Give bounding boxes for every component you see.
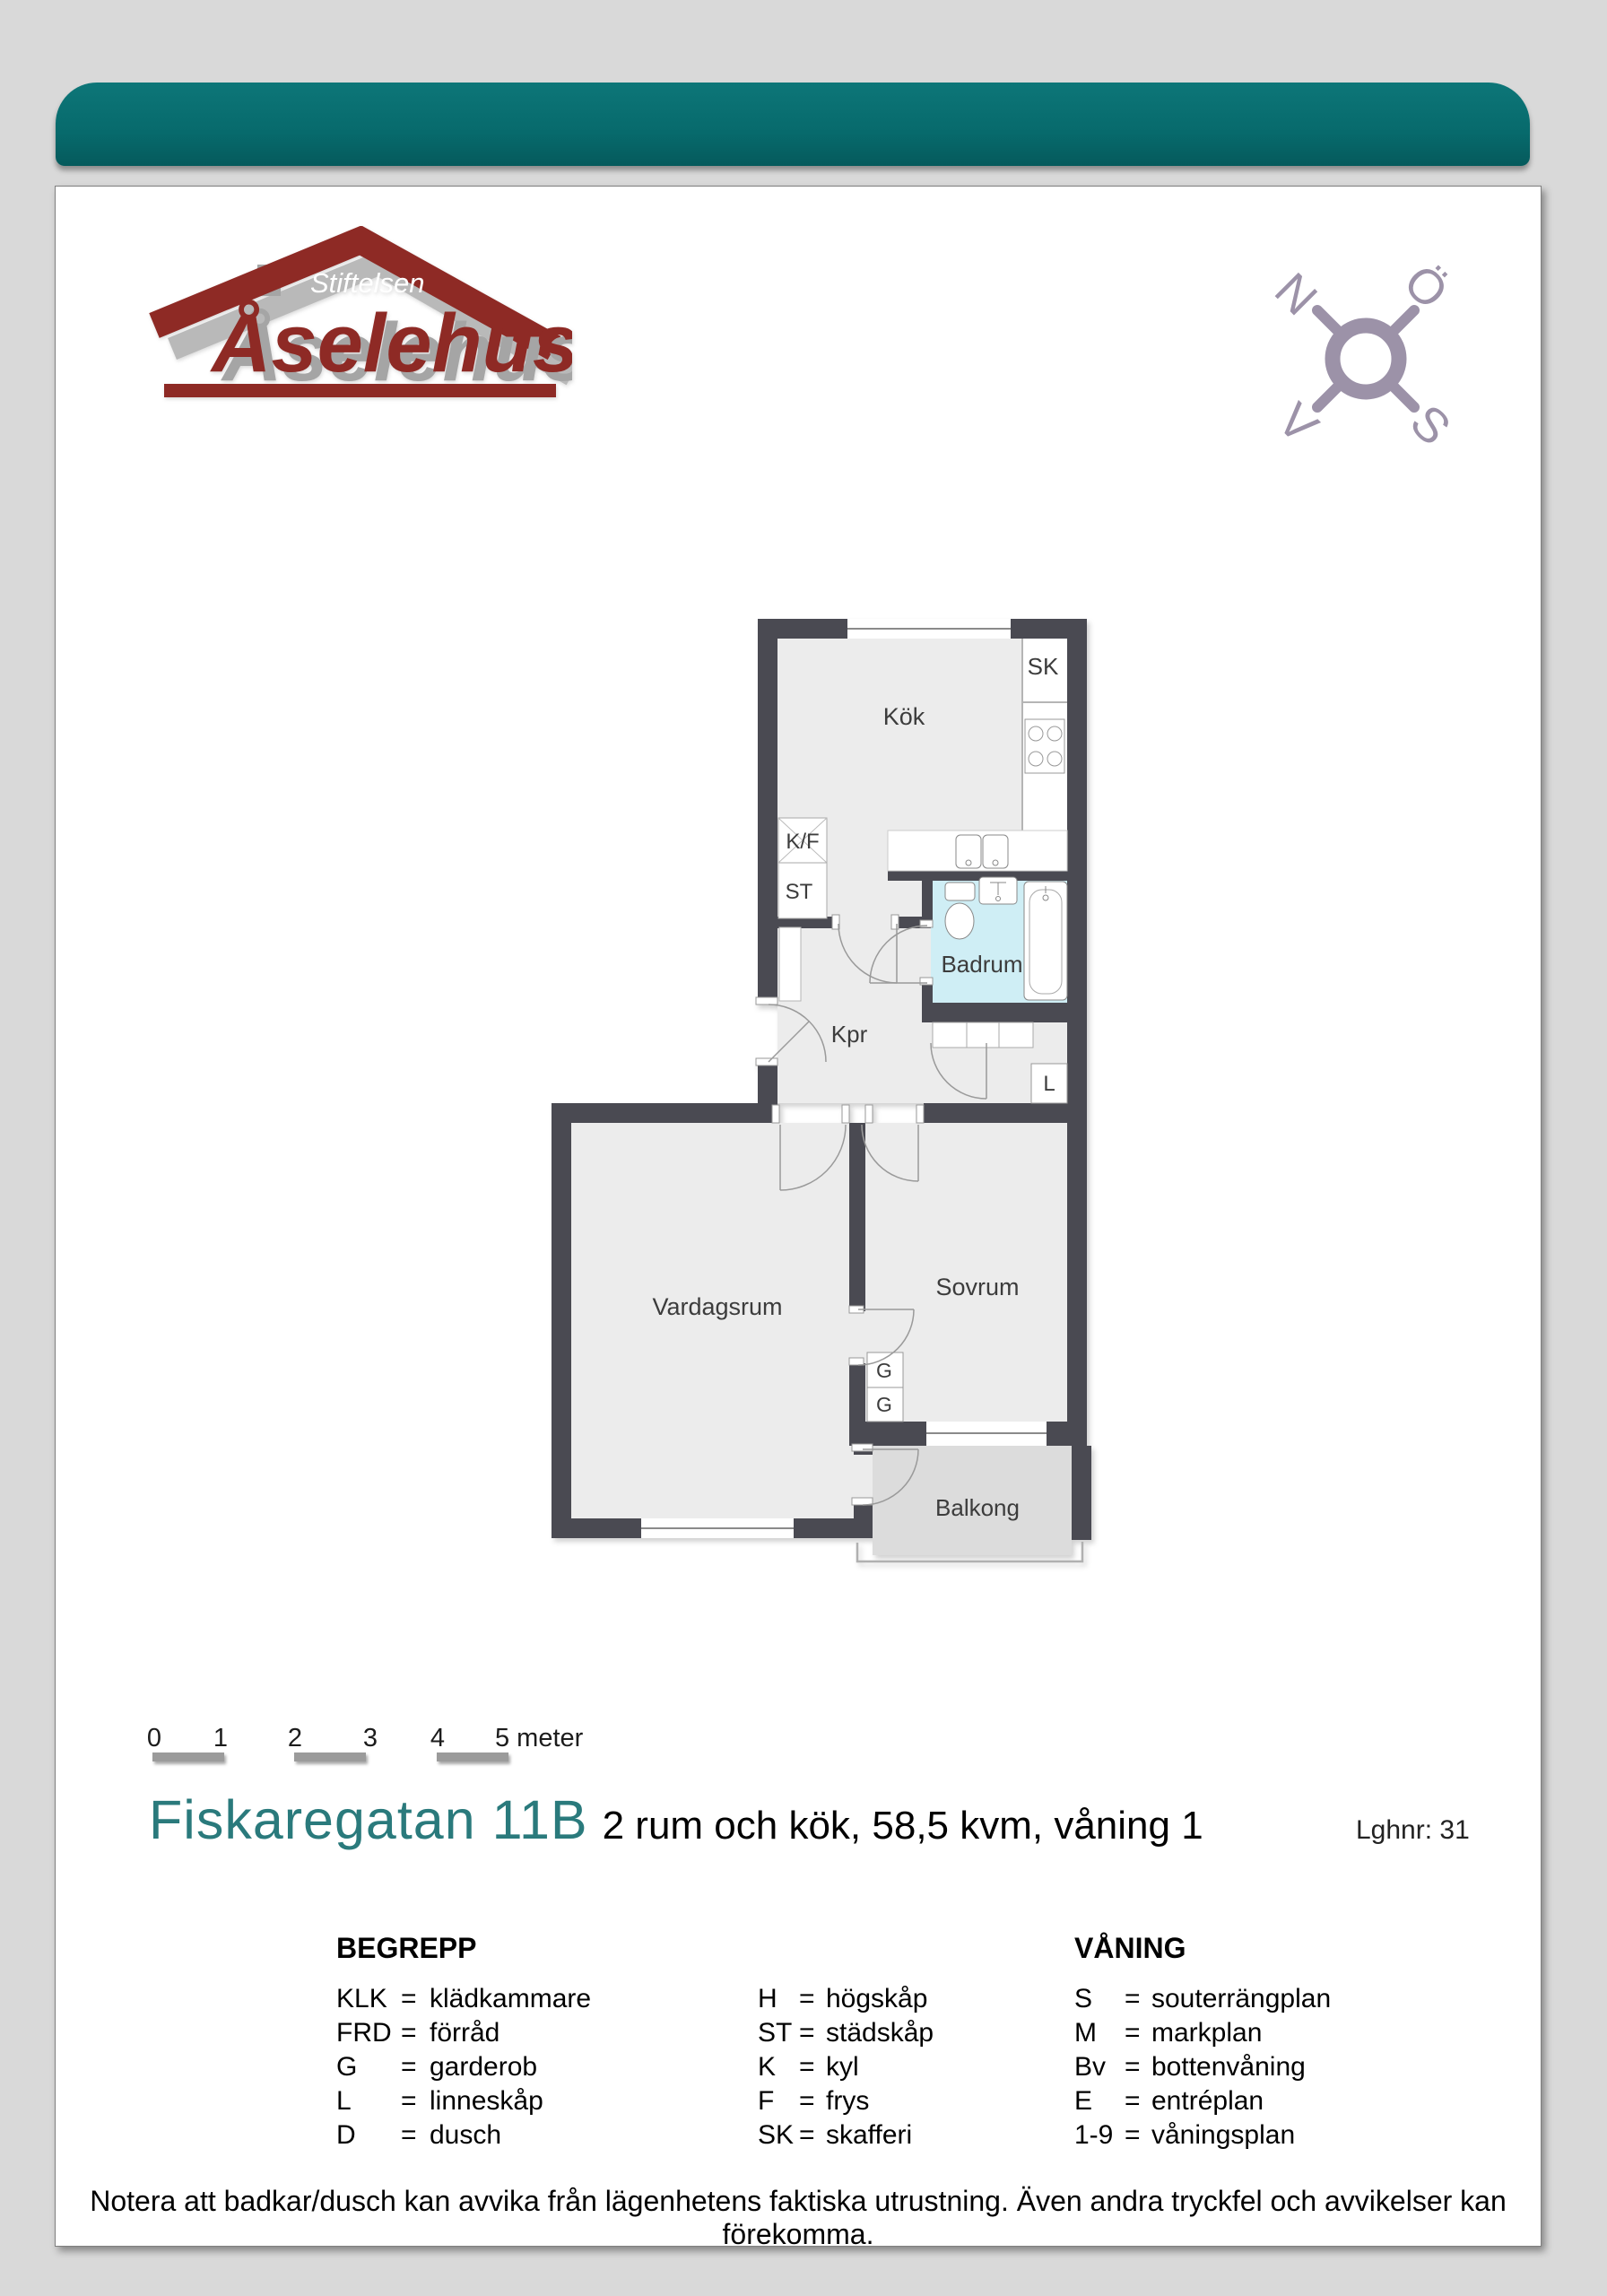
legend-item: D=dusch	[336, 2118, 591, 2152]
legend-item: S=souterrängplan	[1074, 1982, 1331, 2016]
legend-item: G=garderob	[336, 2050, 591, 2084]
legend-column-begrepp: KLK=klädkammare FRD=förråd G=garderob L=…	[336, 1982, 591, 2152]
scale-tick-4: 4	[430, 1724, 445, 1753]
logo-stiftelsen-text: Stiftelsen	[310, 267, 425, 299]
legend-item: F=frys	[758, 2084, 934, 2118]
apartment-number: Lghnr: 31	[1356, 1815, 1470, 1846]
legend-item: ST=städskåp	[758, 2016, 934, 2050]
closet-label-kf: K/F	[786, 830, 819, 854]
compass-ring	[1333, 326, 1399, 392]
room-label-vardagsrum: Vardagsrum	[652, 1293, 782, 1320]
legend-item: M=markplan	[1074, 2016, 1331, 2050]
room-label-kpr: Kpr	[831, 1021, 868, 1048]
header-bar	[56, 83, 1530, 166]
legend-item: L=linneskåp	[336, 2084, 591, 2118]
legend-item: 1-9=våningsplan	[1074, 2118, 1331, 2152]
scale-tick-1: 1	[213, 1724, 228, 1753]
legend-item: SK=skafferi	[758, 2118, 934, 2152]
hall-cabinet	[779, 927, 801, 1001]
legend-column-skap: H=högskåp ST=städskåp K=kyl F=frys SK=sk…	[758, 1982, 934, 2152]
room-floors	[571, 639, 1072, 1555]
room-label-badrum: Badrum	[941, 951, 1022, 978]
floor-plan: Kök SK K/F ST Badrum Kpr L Sovrum Vardag…	[538, 610, 1094, 1587]
document-page-background: Stiftelsen Åselehus Åselehus N Ö S V	[0, 0, 1607, 2296]
scale-bar-segment	[294, 1752, 366, 1761]
legend-item: K=kyl	[758, 2050, 934, 2084]
room-label-kok: Kök	[883, 703, 925, 730]
scale-bar-segment	[437, 1752, 508, 1761]
closet-label-g1: G	[876, 1359, 892, 1382]
scale-tick-3: 3	[363, 1724, 378, 1753]
page-title-address: Fiskaregatan 11B	[149, 1788, 588, 1851]
aselehus-logo: Stiftelsen Åselehus Åselehus	[142, 226, 572, 414]
scale-tick-2: 2	[288, 1724, 302, 1753]
disclaimer-note: Notera att badkar/dusch kan avvika från …	[56, 2185, 1541, 2251]
room-label-sovrum: Sovrum	[935, 1274, 1019, 1300]
closet-label-sk: SK	[1028, 653, 1059, 680]
room-label-balkong: Balkong	[935, 1494, 1020, 1521]
closet-label-g2: G	[876, 1393, 892, 1416]
legend-item: KLK=klädkammare	[336, 1982, 591, 2016]
bathroom-sink-icon	[979, 877, 1017, 904]
scale-tick-5-meter: 5 meter	[495, 1724, 583, 1753]
page-title-details: 2 rum och kök, 58,5 kvm, våning 1	[603, 1804, 1203, 1848]
legend-item: E=entréplan	[1074, 2084, 1331, 2118]
bathtub-icon	[1024, 882, 1067, 1000]
toilet-icon	[945, 883, 975, 939]
closet-label-l: L	[1043, 1072, 1055, 1096]
legend-column-vaning: S=souterrängplan M=markplan Bv=bottenvån…	[1074, 1982, 1331, 2152]
legend-heading-begrepp: BEGREPP	[336, 1932, 476, 1965]
compass-east-label: Ö	[1394, 255, 1458, 319]
scale-bar-segment	[152, 1752, 224, 1761]
logo-aselehus-text: Åselehus	[210, 298, 572, 389]
scale-tick-0: 0	[147, 1724, 161, 1753]
legend-item: FRD=förråd	[336, 2016, 591, 2050]
document-page: Stiftelsen Åselehus Åselehus N Ö S V	[55, 186, 1542, 2247]
title-block: Fiskaregatan 11B 2 rum och kök, 58,5 kvm…	[149, 1788, 1203, 1851]
compass-rose-icon: N Ö S V	[1251, 242, 1484, 471]
closet-label-st: ST	[786, 880, 813, 904]
legend-heading-vaning: VÅNING	[1074, 1932, 1186, 1965]
legend-item: H=högskåp	[758, 1982, 934, 2016]
legend-item: Bv=bottenvåning	[1074, 2050, 1331, 2084]
